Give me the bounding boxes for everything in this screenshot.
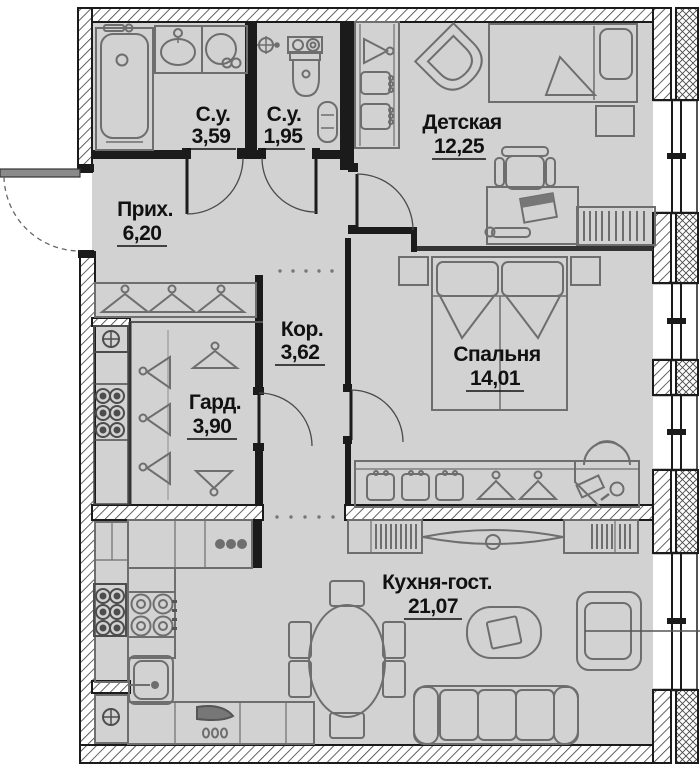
room-area: 3,62	[281, 341, 320, 364]
room-name: Кор.	[281, 318, 323, 341]
wall-hatch	[80, 745, 658, 763]
room-name: С.у.	[196, 103, 231, 126]
floor-plan-canvas: С.у. 3,59 С.у. 1,95 Детская 12,25 Прих. …	[0, 0, 700, 770]
floor-plan-page: С.у. 3,59 С.у. 1,95 Детская 12,25 Прих. …	[0, 0, 700, 770]
room-label-corridor: Кор. 3,62	[275, 318, 325, 365]
room-name: Прих.	[117, 198, 173, 221]
wall-hatch	[78, 8, 92, 172]
room-name: С.у.	[267, 103, 302, 126]
wall-hatch	[92, 505, 263, 520]
room-area: 3,90	[193, 415, 232, 438]
wall-hatch	[653, 470, 671, 553]
wall-hatch	[653, 690, 671, 763]
room-area: 14,01	[470, 367, 521, 390]
wall-hatch	[92, 318, 130, 326]
room-name: Кухня-гост.	[382, 571, 492, 594]
apartment-floor	[92, 22, 653, 745]
room-name: Спальня	[453, 343, 540, 366]
room-area: 6,20	[123, 222, 162, 245]
room-area: 3,59	[192, 125, 231, 148]
room-name: Гард.	[189, 391, 241, 414]
room-name: Детская	[422, 111, 501, 134]
room-area: 21,07	[408, 595, 458, 618]
room-area: 12,25	[434, 135, 485, 158]
wall-hatch	[653, 8, 671, 100]
room-area: 1,95	[264, 125, 304, 148]
wall-hatch	[78, 8, 656, 22]
wall-hatch	[653, 360, 671, 395]
room-label-bathroom-small: С.у. 1,95	[261, 103, 305, 149]
